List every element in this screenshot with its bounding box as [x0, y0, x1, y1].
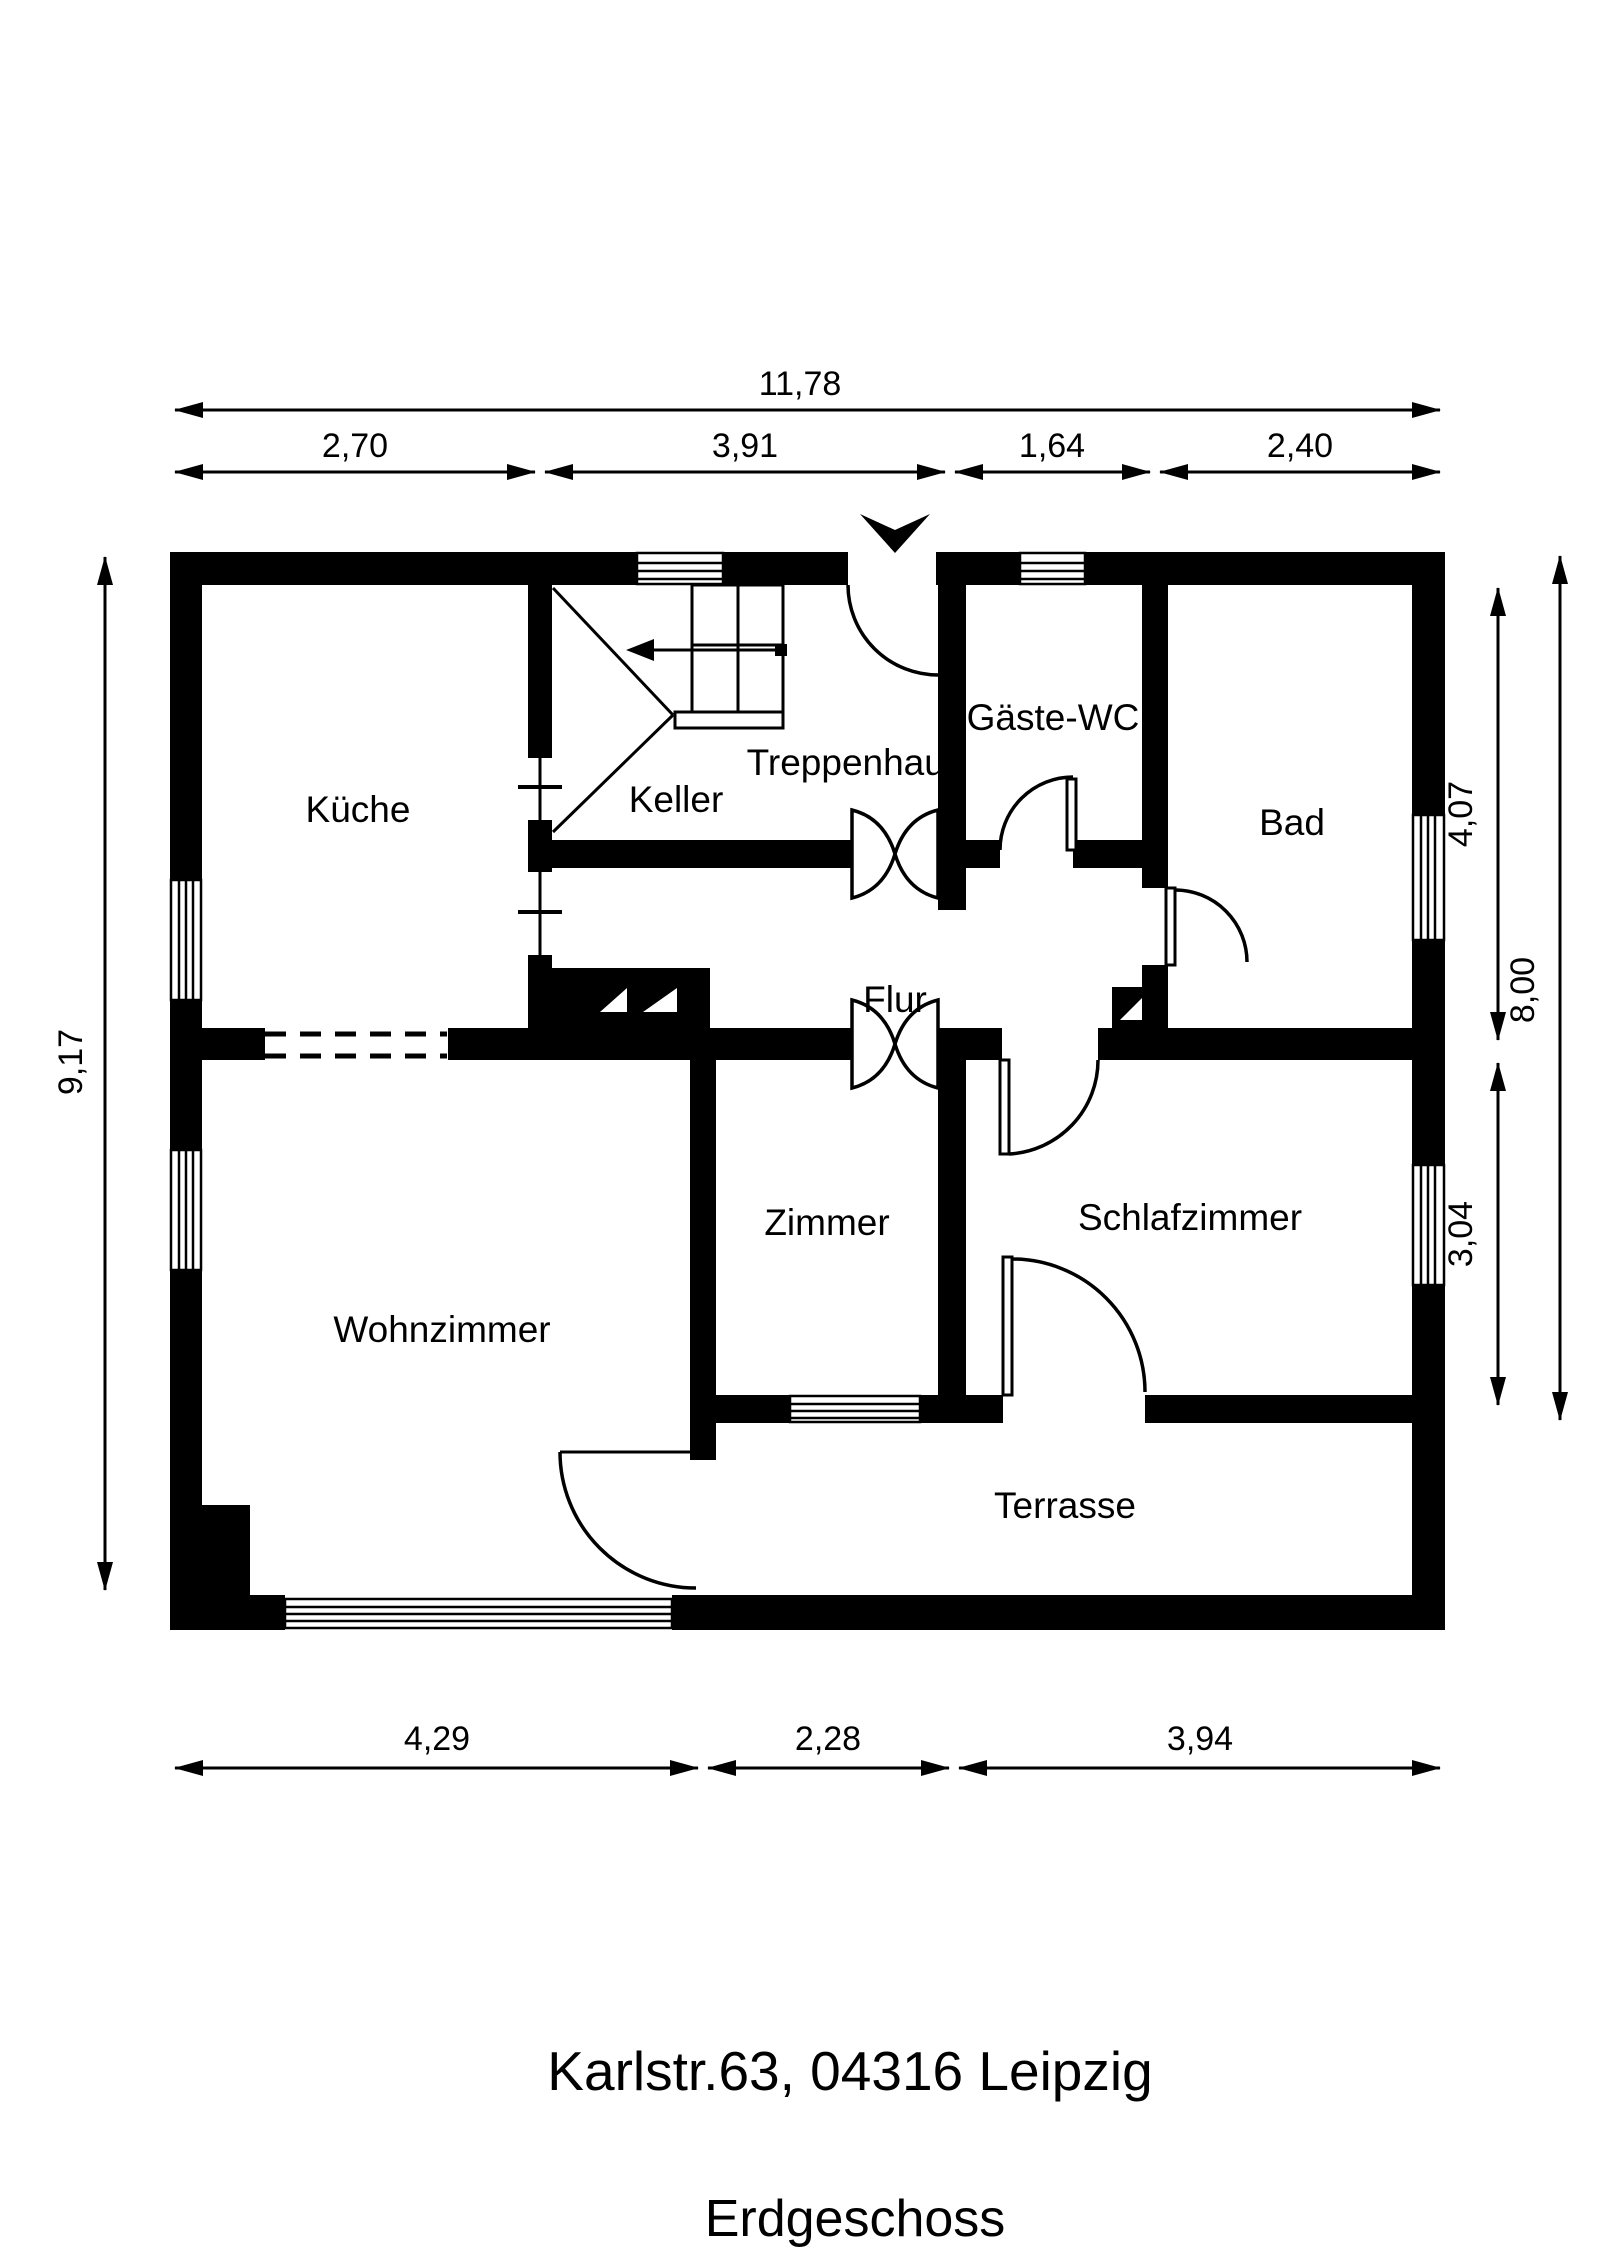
dim-top-seg-3: 1,64 [1019, 427, 1085, 465]
dim-top-seg-2: 3,91 [712, 427, 778, 465]
room-label-gaeste-wc: Gäste-WC [967, 697, 1140, 738]
window-schlafzimmer-right [1413, 1165, 1444, 1285]
floorplan-page: Küche Keller Treppenhaus Gäste-WC Bad Fl… [0, 0, 1600, 2264]
dim-bottom-seg-2: 2,28 [795, 1720, 861, 1758]
dim-top-seg-4: 2,40 [1267, 427, 1333, 465]
dim-top-seg-1: 2,70 [322, 427, 388, 465]
room-label-zimmer: Zimmer [764, 1202, 889, 1243]
schlafzimmer-terrasse-door [1003, 1257, 1145, 1395]
window-wohnzimmer-bottom [285, 1599, 672, 1628]
window-wohnzimmer-left [171, 1150, 201, 1270]
dim-right-bad: 4,07 [1442, 781, 1480, 847]
dashed-opening [265, 1034, 447, 1056]
room-label-wohnzimmer: Wohnzimmer [333, 1309, 550, 1350]
floorplan-drawing: Küche Keller Treppenhaus Gäste-WC Bad Fl… [0, 0, 1600, 2264]
entrance-arrow-icon [860, 514, 930, 553]
room-label-keller: Keller [629, 779, 724, 820]
dim-right-schlafzimmer: 3,04 [1442, 1201, 1480, 1267]
room-label-treppenhaus: Treppenhaus [747, 742, 964, 783]
flur-treppenhaus-swing-door [852, 810, 938, 898]
title-block: Karlstr.63, 04316 Leipzig Erdgeschoss [547, 2040, 1152, 2248]
chimney-block [528, 968, 710, 1028]
room-label-terrasse: Terrasse [994, 1485, 1136, 1526]
bad-door [1166, 888, 1247, 965]
entrance-door [848, 585, 938, 675]
window-treppenhaus-top [637, 553, 723, 584]
window-gaeste-wc-top [1020, 553, 1085, 584]
stair-direction-arrow [626, 639, 787, 661]
window-bad-right [1413, 815, 1444, 940]
room-label-schlafzimmer: Schlafzimmer [1078, 1197, 1302, 1238]
wohnzimmer-terrasse-door [560, 1452, 700, 1588]
gaeste-wc-door [1000, 777, 1076, 850]
flue-block [1112, 987, 1150, 1028]
room-label-bad: Bad [1259, 802, 1325, 843]
exterior-walls [170, 552, 1445, 1630]
dim-right-total: 8,00 [1504, 957, 1542, 1023]
dim-top-total: 11,78 [759, 365, 842, 403]
window-kueche-left [171, 880, 201, 1000]
window-zimmer-terrasse [790, 1396, 920, 1422]
windows [171, 553, 1444, 1628]
plan-address: Karlstr.63, 04316 Leipzig [547, 2040, 1152, 2102]
dim-left-total: 9,17 [52, 1029, 90, 1095]
room-label-flur: Flur [863, 979, 927, 1020]
dim-bottom-seg-3: 3,94 [1167, 1720, 1233, 1758]
plan-floor: Erdgeschoss [705, 2190, 1006, 2248]
dim-bottom-seg-1: 4,29 [404, 1720, 470, 1758]
room-label-kueche: Küche [306, 789, 411, 830]
schlafzimmer-door [1000, 1060, 1098, 1154]
